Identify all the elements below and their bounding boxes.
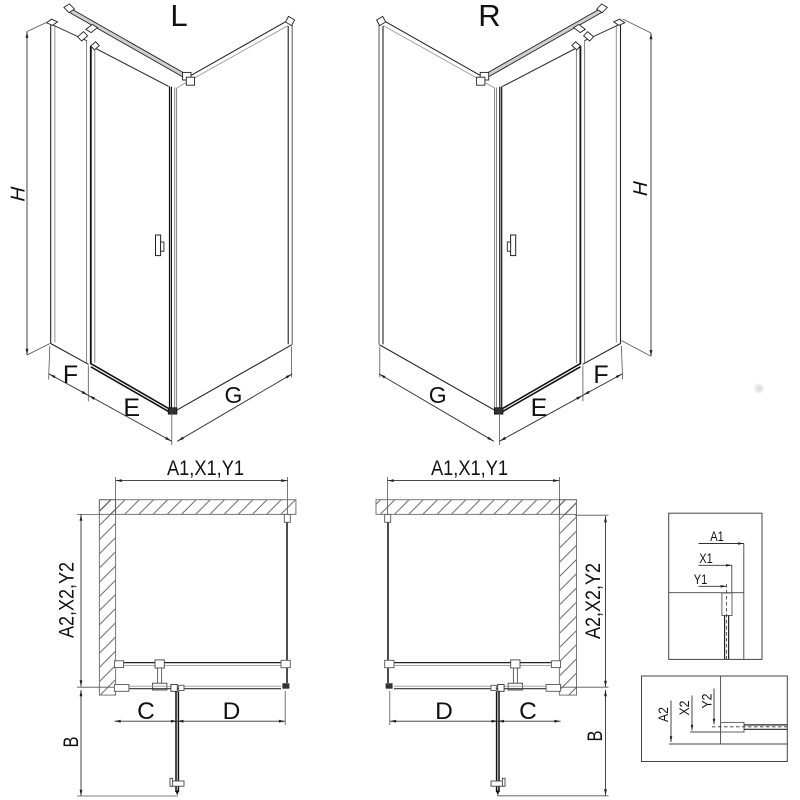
svg-text:D: D: [435, 698, 453, 725]
svg-text:A2: A2: [655, 707, 671, 722]
svg-text:E: E: [531, 394, 548, 422]
svg-text:F: F: [63, 361, 78, 389]
svg-text:G: G: [429, 382, 447, 408]
svg-text:E: E: [123, 394, 140, 422]
svg-text:A1: A1: [710, 528, 724, 544]
svg-text:R: R: [478, 0, 500, 33]
svg-text:G: G: [225, 382, 243, 408]
svg-text:X1: X1: [699, 550, 713, 566]
svg-text:B: B: [60, 737, 83, 748]
svg-text:Y2: Y2: [699, 693, 715, 708]
svg-text:Y1: Y1: [694, 571, 708, 587]
svg-text:X2: X2: [676, 700, 692, 715]
svg-text:B: B: [584, 731, 607, 742]
svg-text:A1,X1,Y1: A1,X1,Y1: [167, 457, 244, 480]
svg-text:C: C: [519, 698, 537, 725]
svg-text:A1,X1,Y1: A1,X1,Y1: [431, 457, 508, 480]
svg-text:L: L: [170, 0, 187, 33]
svg-text:D: D: [223, 698, 241, 725]
svg-text:F: F: [593, 361, 608, 389]
svg-text:A2,X2,Y2: A2,X2,Y2: [582, 563, 605, 639]
svg-text:A2,X2,Y2: A2,X2,Y2: [56, 562, 79, 638]
svg-text:C: C: [137, 698, 155, 725]
